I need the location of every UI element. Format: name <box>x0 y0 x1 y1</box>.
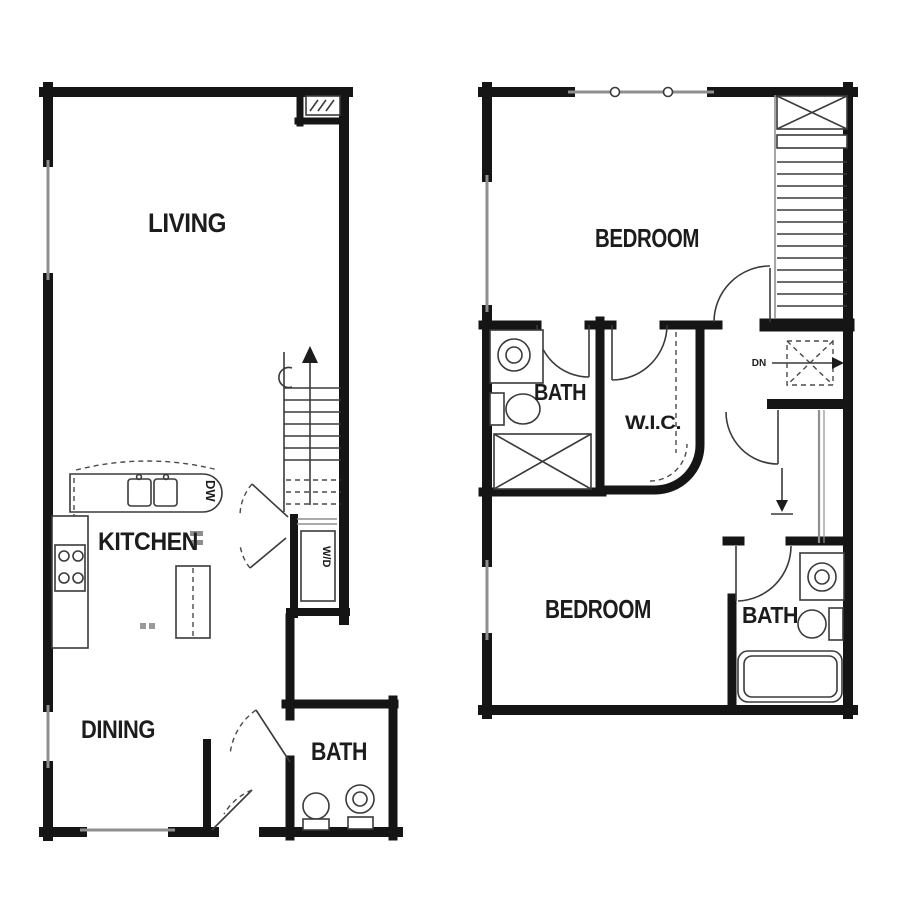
dining-label: DINING <box>81 716 155 744</box>
bedroom2-label: BEDROOM <box>545 594 651 624</box>
door-leaf <box>252 484 288 517</box>
stairs-arrow-head <box>302 346 318 363</box>
pedestal-sink-icon <box>346 785 374 813</box>
living-label: LIVING <box>148 208 226 238</box>
first-floor-inner-doors <box>240 484 288 568</box>
down-label: DN <box>752 358 766 369</box>
window-mullion <box>611 88 620 97</box>
sink-icon <box>498 339 530 371</box>
stair-landing <box>777 135 847 148</box>
down-arrow-head <box>832 357 844 369</box>
first-floor-bath-fixtures <box>303 785 374 830</box>
door-leaf <box>250 538 286 568</box>
kitchen-sink-icon <box>128 479 151 506</box>
first-floor-stairs <box>279 346 341 512</box>
toilet-tank <box>303 819 329 830</box>
dishwasher-label: DW <box>203 480 218 502</box>
floor-plan: DW W/D <box>0 0 900 900</box>
toilet-icon <box>798 610 826 638</box>
window-mullion <box>664 88 673 97</box>
hall-arrow-head <box>776 500 788 512</box>
floor-outlet-icon <box>149 623 155 629</box>
bath1-label: BATH <box>534 379 586 405</box>
second-floor-plan: DN <box>483 87 853 714</box>
sink-pedestal <box>348 817 373 829</box>
wic-details <box>650 332 687 481</box>
sink-icon <box>808 563 836 591</box>
kitchen-label: KITCHEN <box>98 528 198 556</box>
down-marker: DN <box>746 341 844 514</box>
stairs-turn-arrow <box>279 368 292 388</box>
refrigerator-icon <box>176 566 210 638</box>
entry-door-leaf <box>212 790 252 830</box>
bath-door-leaf <box>256 710 290 762</box>
wic-label: W.I.C. <box>625 413 681 434</box>
toilet-tank <box>829 608 843 640</box>
washer-dryer-closet: W/D <box>301 531 335 601</box>
stair-railing <box>819 410 824 543</box>
bathtub-icon <box>738 651 842 702</box>
first-floor-plan: DW W/D <box>44 87 398 836</box>
bath2-label: BATH <box>742 602 798 628</box>
kitchen-sink-icon <box>154 479 177 506</box>
water-heater-icon <box>306 96 340 115</box>
bath1-fixtures <box>490 330 591 489</box>
toilet-icon <box>303 793 329 819</box>
toilet-tank <box>490 393 504 425</box>
bath-label: BATH <box>311 738 367 766</box>
floor-outlet-icon <box>140 623 146 629</box>
bedroom1-label: BEDROOM <box>595 223 699 253</box>
second-floor-stairs <box>775 95 847 318</box>
entry-doors <box>212 710 290 830</box>
washer-dryer-label: W/D <box>320 546 332 567</box>
